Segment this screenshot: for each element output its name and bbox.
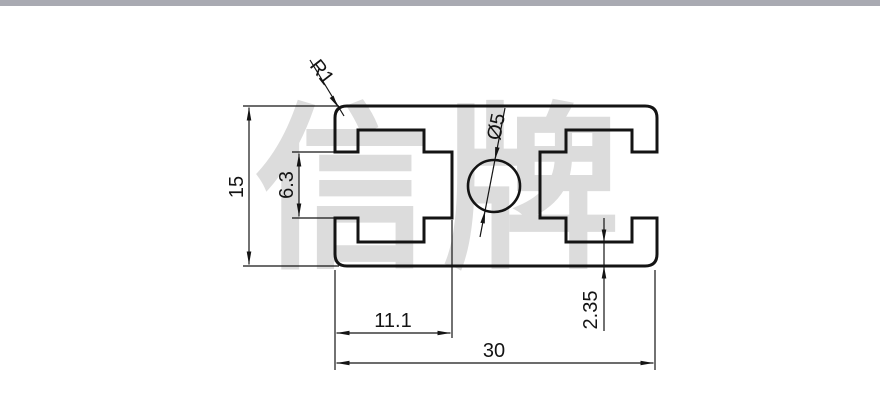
label-slot-depth: 11.1 <box>374 310 411 332</box>
drawing-page: 信牌 15 6.3 R1 Ø5 11.1 <box>0 0 880 420</box>
arrowhead-wall-top <box>602 230 607 243</box>
arrowhead-hole-bottom <box>480 210 485 223</box>
cad-drawing: 15 6.3 R1 Ø5 11.1 30 2.35 <box>0 0 880 420</box>
label-slot-opening: 6.3 <box>276 171 298 199</box>
label-wall-thickness: 2.35 <box>580 291 602 330</box>
label-hole-diameter: Ø5 <box>483 112 510 142</box>
label-overall-width: 30 <box>483 340 505 362</box>
arrowhead-hole-top <box>495 147 500 160</box>
arrowhead-wall-bottom <box>602 266 607 279</box>
arrowhead-corner-radius <box>330 96 338 107</box>
label-overall-height: 15 <box>226 176 248 198</box>
